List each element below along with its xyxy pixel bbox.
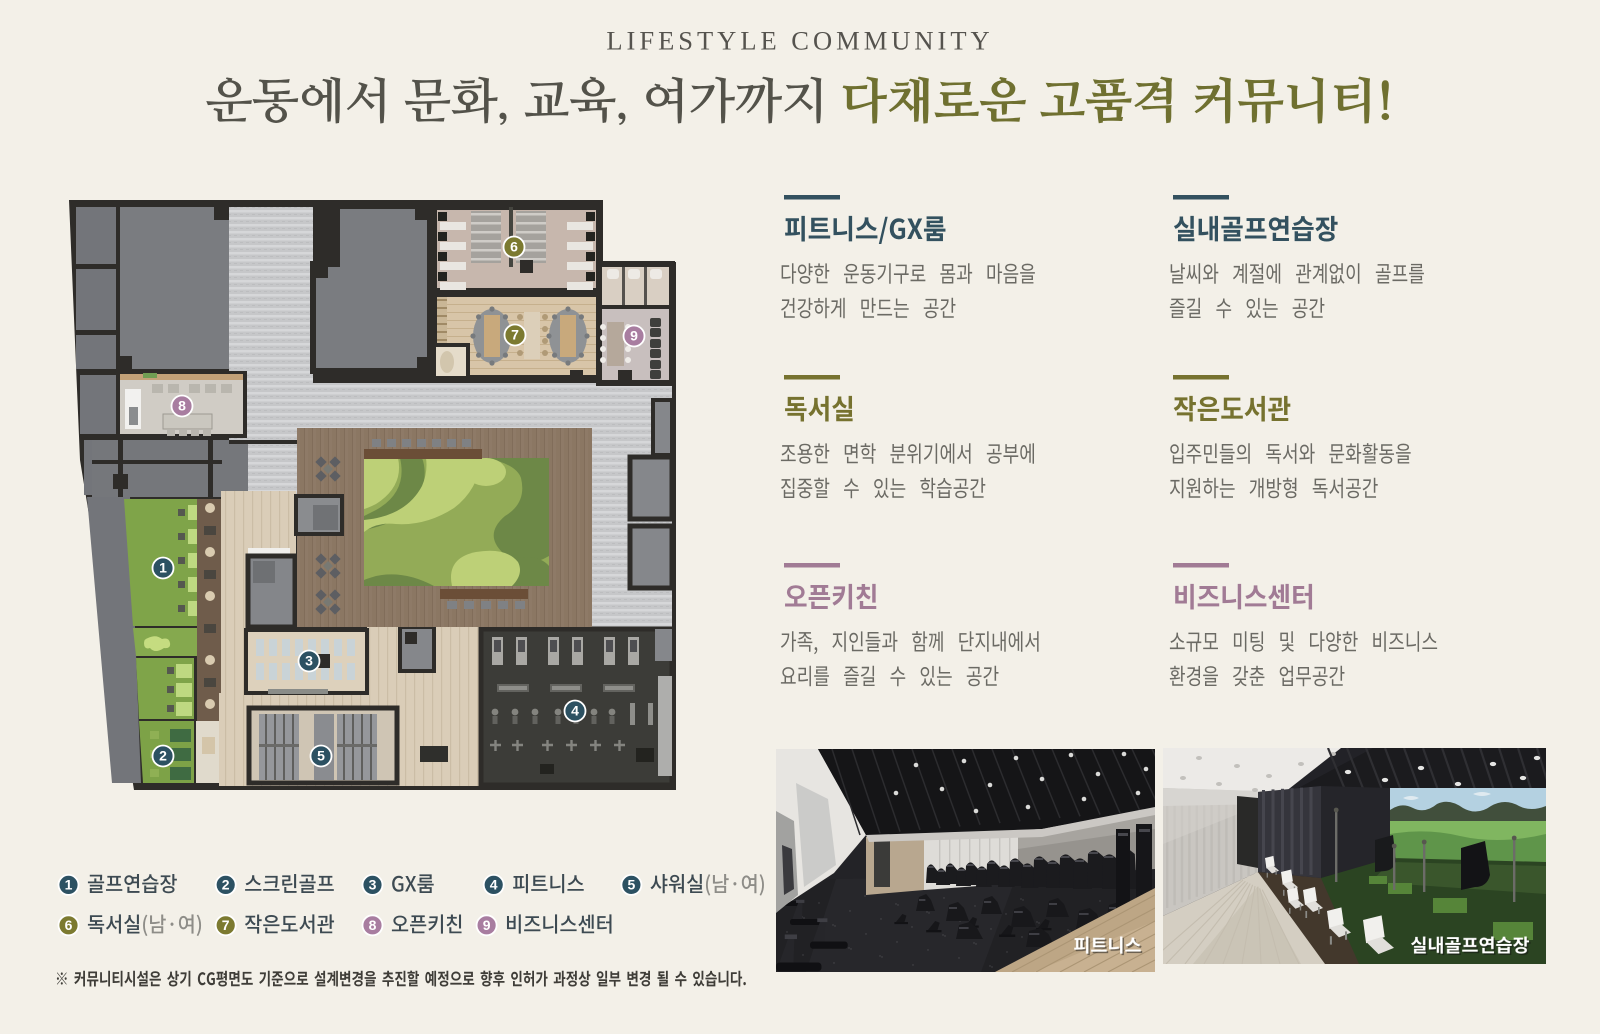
- svg-text:LIFESTYLE COMMUNITY: LIFESTYLE COMMUNITY: [606, 26, 993, 56]
- svg-text:1: 1: [65, 877, 73, 893]
- svg-text:6: 6: [65, 917, 73, 933]
- svg-text:3: 3: [369, 877, 377, 893]
- svg-text:8: 8: [369, 917, 377, 933]
- svg-text:4: 4: [490, 877, 498, 893]
- svg-text:1: 1: [159, 560, 167, 576]
- svg-text:7: 7: [511, 327, 519, 343]
- svg-text:3: 3: [305, 653, 313, 669]
- svg-text:5: 5: [628, 877, 636, 893]
- svg-text:7: 7: [222, 917, 230, 933]
- svg-text:5: 5: [317, 748, 325, 764]
- svg-text:2: 2: [159, 748, 167, 764]
- svg-text:4: 4: [571, 703, 579, 719]
- svg-text:6: 6: [510, 239, 518, 255]
- svg-text:8: 8: [178, 398, 186, 414]
- svg-text:9: 9: [483, 917, 491, 933]
- svg-text:9: 9: [630, 328, 638, 344]
- svg-text:2: 2: [222, 877, 230, 893]
